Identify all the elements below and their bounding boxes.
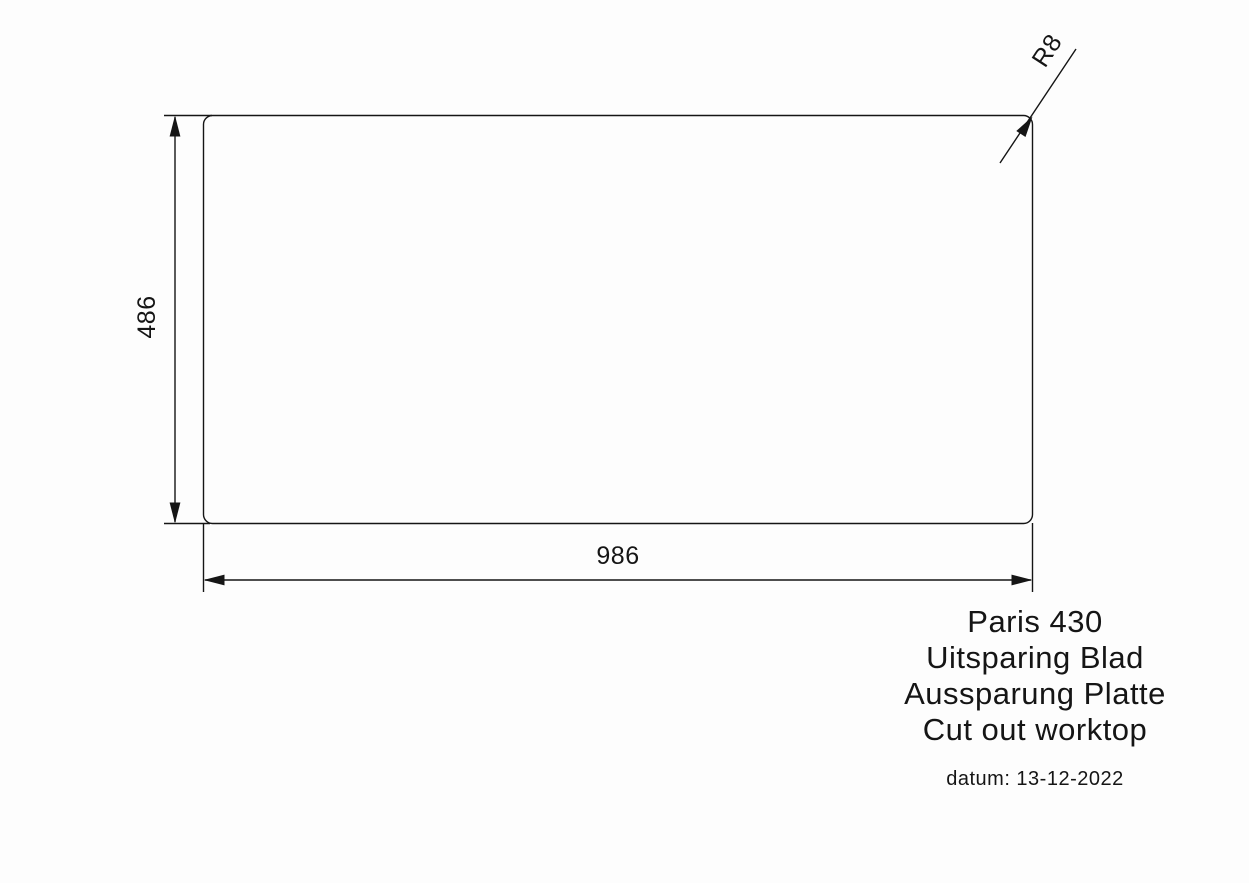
technical-drawing-sheet: 486 986 R8 Paris 430 Uitsparing Blad Aus…: [0, 0, 1249, 883]
width-dimension-label: 986: [596, 542, 639, 570]
arrowhead-right: [1012, 575, 1033, 586]
radius-leader-line: [1000, 49, 1076, 163]
arrowhead-up: [170, 116, 181, 137]
arrowhead-down: [170, 503, 181, 524]
height-dimension-label: 486: [133, 295, 161, 338]
title-block: Paris 430 Uitsparing Blad Aussparung Pla…: [835, 604, 1235, 790]
title-line-nl: Uitsparing Blad: [835, 640, 1235, 676]
arrowhead-left: [204, 575, 225, 586]
radius-label: R8: [1027, 29, 1068, 72]
cutout-rectangle: [204, 116, 1033, 524]
title-line-en: Cut out worktop: [835, 712, 1235, 748]
title-line-de: Aussparung Platte: [835, 676, 1235, 712]
date-line: datum: 13-12-2022: [835, 768, 1235, 790]
product-name: Paris 430: [835, 604, 1235, 640]
